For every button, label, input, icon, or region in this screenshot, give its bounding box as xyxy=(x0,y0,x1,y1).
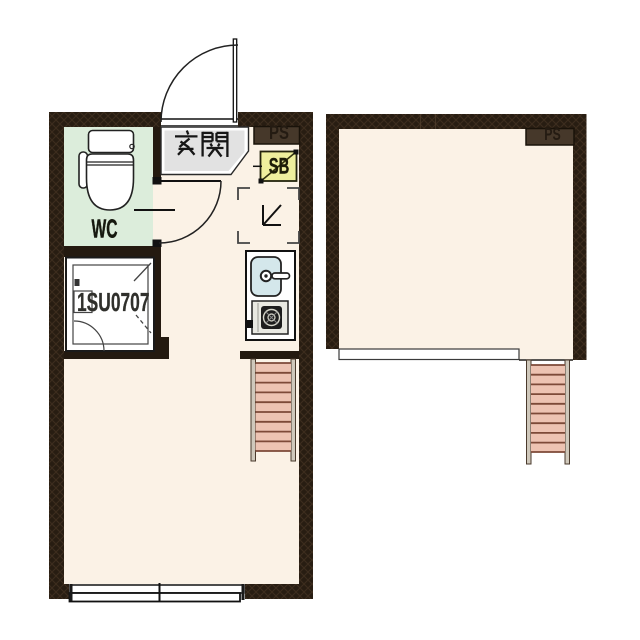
svg-text:PS: PS xyxy=(269,123,289,144)
svg-text:WC: WC xyxy=(92,214,118,244)
svg-text:1SU0707: 1SU0707 xyxy=(77,287,150,317)
svg-text:PS: PS xyxy=(544,124,561,144)
svg-text:SB: SB xyxy=(269,154,290,179)
